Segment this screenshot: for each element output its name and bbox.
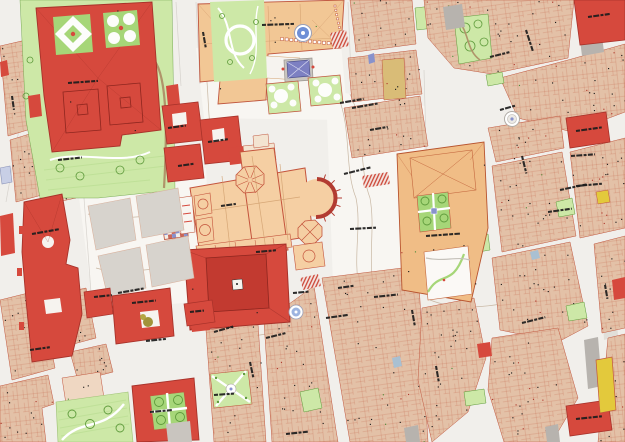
block-dot [104, 362, 105, 363]
block-dot [517, 433, 518, 434]
block-dot [538, 284, 539, 285]
block-dot [431, 314, 432, 315]
block-dot [314, 317, 315, 318]
block-dot [9, 427, 10, 428]
block-dot [601, 212, 602, 213]
block-dot [257, 387, 258, 388]
block-dot [492, 399, 493, 400]
palace-annex [28, 94, 42, 118]
block-dot [320, 411, 321, 412]
block-dot [286, 348, 287, 349]
block-dot [614, 105, 615, 106]
block-dot [549, 214, 550, 215]
block-dot [621, 219, 622, 220]
block-dot [513, 363, 514, 364]
block-dot [383, 307, 384, 308]
block-dot [516, 404, 517, 405]
block-dot [427, 24, 428, 25]
block-dot [535, 301, 536, 302]
block-dot [533, 399, 534, 400]
block-dot [623, 361, 624, 362]
seminary-crenellation-merlon [335, 9, 337, 11]
block-dot [539, 1, 540, 2]
block-dot [524, 275, 525, 276]
block-dot [357, 321, 358, 322]
block-dot [296, 351, 297, 352]
block-dot [2, 48, 3, 49]
convent-white-court-dot [443, 279, 446, 282]
block-dot [466, 348, 467, 349]
gate-posts [282, 68, 285, 71]
block-dot [487, 10, 488, 11]
block-dot [567, 255, 568, 256]
block-dot [510, 186, 511, 187]
block-dot [513, 309, 514, 310]
block-dot [31, 412, 32, 413]
block-dot [221, 342, 222, 343]
block-dot [84, 335, 85, 336]
block-dot [502, 300, 503, 301]
block-dot [602, 176, 603, 177]
block-dot [401, 252, 402, 253]
block-dot [354, 3, 355, 4]
block-dot [586, 90, 587, 91]
block-dot [615, 380, 616, 381]
block-dot [552, 82, 553, 83]
gate-posts [312, 66, 315, 69]
block-dot [451, 368, 452, 369]
block-dot [436, 8, 437, 9]
seminary-crenellation-merlon [281, 38, 284, 41]
seminary-crenellation-merlon [323, 41, 326, 44]
block-dot [604, 223, 605, 224]
block-dot [17, 79, 18, 80]
block-dot [522, 245, 523, 246]
block-dot [602, 157, 603, 158]
block-dot [543, 218, 544, 219]
monument-red-block [574, 0, 625, 45]
block-dot [68, 399, 69, 400]
block-dot [438, 357, 439, 358]
townhall-bumps [17, 268, 22, 276]
block-dot [239, 348, 240, 349]
formal-garden-trees [288, 84, 295, 91]
convent-white-court [424, 246, 472, 300]
block-dot [289, 325, 290, 326]
block-dot [192, 289, 193, 290]
block-dot [284, 398, 285, 399]
block-dot [457, 2, 458, 3]
gray-building [443, 4, 465, 30]
block-dot [282, 408, 283, 409]
green-plaza-trees [217, 401, 219, 403]
block-dot [33, 417, 34, 418]
block-dot [514, 64, 515, 65]
seminary-crenellation-merlon [337, 22, 339, 24]
block-dot [344, 281, 345, 282]
block-dot [621, 158, 622, 159]
seminary-crenellation-merlon [334, 5, 336, 7]
palace-courtyard-ne-petals [123, 13, 135, 25]
block-dot [227, 432, 228, 433]
block-dot [427, 312, 428, 313]
block-dot [316, 26, 317, 27]
block-dot [234, 415, 235, 416]
block-dot [568, 279, 569, 280]
block-dot [500, 31, 501, 32]
block-dot [567, 218, 568, 219]
formal-garden-trees [315, 96, 322, 103]
green-plaza-trees [245, 397, 247, 399]
seminary-crenellation-merlon [318, 41, 321, 44]
block-dot [621, 55, 622, 56]
block-dot [12, 79, 13, 80]
block-dot [397, 86, 398, 87]
block-dot [425, 373, 426, 374]
map-canvas[interactable] [0, 0, 625, 442]
block-dot [257, 312, 258, 313]
monument-red-block [566, 112, 610, 148]
seminary-crenellation-merlon [337, 18, 339, 20]
block-dot [470, 331, 471, 332]
block-dot [615, 222, 616, 223]
block-dot [518, 244, 519, 245]
block-dot [383, 281, 384, 282]
block-dot [427, 323, 428, 324]
block-dot [452, 330, 453, 331]
map-label [214, 394, 234, 395]
block-dot [608, 68, 609, 69]
block-dot [562, 100, 563, 101]
block-dot [274, 17, 275, 18]
block-dot [20, 159, 21, 160]
block-dot [455, 335, 456, 336]
block-dot [434, 352, 435, 353]
block-dot [393, 372, 394, 373]
block-dot [217, 357, 218, 358]
block-dot [443, 311, 444, 312]
block-dot [516, 185, 517, 186]
block-dot [508, 24, 509, 25]
block-dot [523, 428, 524, 429]
block-dot [97, 371, 98, 372]
block-dot [607, 164, 608, 165]
block-dot [347, 294, 348, 295]
block-dot [544, 255, 545, 256]
block-dot [287, 346, 288, 347]
block-dot [605, 174, 606, 175]
block-dot [408, 271, 409, 272]
block-dot [1, 423, 2, 424]
fountain-roundabout [510, 117, 513, 120]
block-dot [279, 328, 280, 329]
block-dot [403, 136, 404, 137]
block-dot [556, 384, 557, 385]
block-dot [611, 113, 612, 114]
chapel-annex-se [293, 242, 325, 270]
block-dot [601, 276, 602, 277]
block-dot [594, 80, 595, 81]
block-dot [408, 18, 409, 19]
block-dot [230, 422, 231, 423]
block-dot [405, 34, 406, 35]
block-dot [24, 167, 25, 168]
block-dot [584, 322, 585, 323]
block-dot [220, 88, 221, 89]
block-dot [424, 416, 425, 417]
block-dot [529, 388, 530, 389]
block-dot [88, 385, 89, 386]
block-dot [369, 75, 370, 76]
green-plaza-trees [215, 377, 217, 379]
red-annex [166, 84, 180, 106]
block-dot [29, 173, 30, 174]
green-plaza-fountain [230, 388, 233, 391]
museum-building-small [84, 288, 113, 318]
block-dot [354, 419, 355, 420]
block-dot [41, 424, 42, 425]
block-dot [359, 39, 360, 40]
block-dot [522, 413, 523, 414]
block-dot [361, 82, 362, 83]
block-dot [603, 109, 604, 110]
block-dot [395, 89, 396, 90]
block-dot [612, 312, 613, 313]
block-dot [400, 398, 401, 399]
block-dot [530, 109, 531, 110]
block-dot [83, 387, 84, 388]
block-dot [395, 44, 396, 45]
block-dot [558, 5, 559, 6]
palace-courtyard-ne-petals [124, 30, 136, 42]
block-dot [509, 374, 510, 375]
block-dot [456, 332, 457, 333]
block-dot [548, 291, 549, 292]
block-dot [524, 373, 525, 374]
block-dot [498, 71, 499, 72]
block-dot [542, 400, 543, 401]
red-building-west [0, 213, 15, 256]
block-dot [385, 424, 386, 425]
block-dot [494, 361, 495, 362]
red-building-patio [172, 112, 187, 126]
block-dot [15, 370, 16, 371]
block-dot [261, 362, 262, 363]
seminary-crenellation-merlon [313, 40, 316, 43]
block-dot [407, 78, 408, 79]
block-dot [517, 145, 518, 146]
block-dot [475, 283, 476, 284]
block-dot [611, 258, 612, 259]
block-dot [466, 410, 467, 411]
khaki-courtyard [382, 58, 406, 100]
block-dot [5, 437, 6, 438]
block-dot [117, 11, 118, 12]
palace-courtyard-nw-center [71, 32, 75, 36]
block-dot [211, 352, 212, 353]
block-dot [501, 202, 502, 203]
block-dot [80, 332, 81, 333]
block-dot [586, 319, 587, 320]
small-garden [464, 389, 486, 406]
block-dot [472, 309, 473, 310]
block-dot [519, 85, 520, 86]
block-dot [520, 163, 521, 164]
gray-building [545, 424, 560, 442]
block-dot [609, 319, 610, 320]
palace-courtyard-ne-center [119, 26, 123, 30]
block-dot [545, 135, 546, 136]
block-dot [393, 275, 394, 276]
block-dot [52, 402, 53, 403]
plaza-quadrant [146, 236, 194, 287]
block-dot [370, 424, 371, 425]
block-dot [309, 386, 310, 387]
block-dot [438, 386, 439, 387]
block-dot [602, 328, 603, 329]
block-dot [358, 149, 359, 150]
block-dot [535, 269, 536, 270]
cathedral-west-chapel [196, 217, 214, 243]
block-dot [345, 293, 346, 294]
block-dot [512, 215, 513, 216]
fountain-seminary [301, 31, 305, 35]
block-dot [135, 130, 136, 131]
monument-red-block [477, 342, 492, 358]
block-dot [623, 429, 624, 430]
block-dot [508, 200, 509, 201]
block-dot [527, 319, 528, 320]
formal-garden-trees [313, 80, 320, 87]
block-dot [367, 292, 368, 293]
block-dot [32, 166, 33, 167]
block-dot [427, 2, 428, 3]
cathedral-north-porch [253, 134, 269, 148]
formal-garden-trees [269, 86, 276, 93]
block-dot [469, 65, 470, 66]
block-dot [605, 284, 606, 285]
block-dot [369, 145, 370, 146]
block-dot [355, 73, 356, 74]
block-dot [371, 419, 372, 420]
block-dot [358, 343, 359, 344]
block-dot [376, 347, 377, 348]
block-dot [423, 431, 424, 432]
formal-garden-trees [332, 78, 339, 85]
block-dot [419, 69, 420, 70]
block-dot [364, 154, 365, 155]
block-dot [452, 56, 453, 57]
block-dot [517, 430, 518, 431]
formal-garden-trees [274, 89, 288, 103]
block-dot [7, 392, 8, 393]
small-garden [300, 388, 322, 412]
convent-garden-center [431, 208, 437, 214]
block-dot [12, 315, 13, 316]
block-dot [568, 112, 569, 113]
block-dot [253, 327, 254, 328]
block-dot [424, 146, 425, 147]
block-dot [529, 161, 530, 162]
block-dot [13, 165, 14, 166]
block-dot [360, 306, 361, 307]
fountain-plaza-south [295, 311, 298, 314]
block-dot [537, 387, 538, 388]
formal-garden-trees [290, 100, 297, 107]
block-dot [275, 42, 276, 43]
block-dot [545, 215, 546, 216]
block-dot [518, 147, 519, 148]
block-dot [387, 405, 388, 406]
block-dot [9, 402, 10, 403]
block-dot [436, 405, 437, 406]
formal-garden-trees [318, 83, 332, 97]
seminary-crenellation-merlon [285, 38, 288, 41]
palace-courtyard-ne-petals [107, 15, 119, 27]
block-dot [623, 183, 624, 184]
block-dot [455, 340, 456, 341]
block-dot [400, 104, 401, 105]
block-dot [387, 128, 388, 129]
block-dot [528, 214, 529, 215]
yellow-parcel [596, 190, 610, 204]
block-dot [380, 28, 381, 29]
block-dot [294, 385, 295, 386]
block-dot [433, 249, 434, 250]
block-dot [311, 382, 312, 383]
block-dot [499, 35, 500, 36]
cloister-center-dot [236, 283, 238, 285]
block-dot [399, 100, 400, 101]
block-dot [606, 215, 607, 216]
block-dot [526, 207, 527, 208]
block-dot [368, 35, 369, 36]
block-dot [616, 396, 617, 397]
block-dot [565, 34, 566, 35]
block-dot [607, 174, 608, 175]
block-dot [612, 94, 613, 95]
block-dot [14, 113, 15, 114]
block-dot [229, 365, 230, 366]
block-dot [281, 362, 282, 363]
block-dot [441, 334, 442, 335]
block-dot [477, 321, 478, 322]
block-dot [28, 153, 29, 154]
block-dot [70, 101, 71, 102]
block-dot [549, 56, 550, 57]
map-viewport [0, 0, 625, 442]
monument-red-block [612, 277, 625, 300]
block-dot [288, 27, 289, 28]
block-dot [101, 358, 102, 359]
seminary-crenellation-merlon [290, 38, 293, 41]
block-dot [439, 419, 440, 420]
block-dot [323, 423, 324, 424]
block-dot [609, 436, 610, 437]
block-dot [103, 369, 104, 370]
block-dot [584, 62, 585, 63]
block-dot [610, 328, 611, 329]
block-dot [518, 362, 519, 363]
block-dot [284, 409, 285, 410]
block-dot [592, 180, 593, 181]
block-dot [24, 151, 25, 152]
block-dot [511, 372, 512, 373]
palace-courtyard-ne-petals [108, 32, 120, 44]
block-dot [562, 312, 563, 313]
block-dot [379, 151, 380, 152]
crosswalk-hatch [330, 30, 349, 49]
